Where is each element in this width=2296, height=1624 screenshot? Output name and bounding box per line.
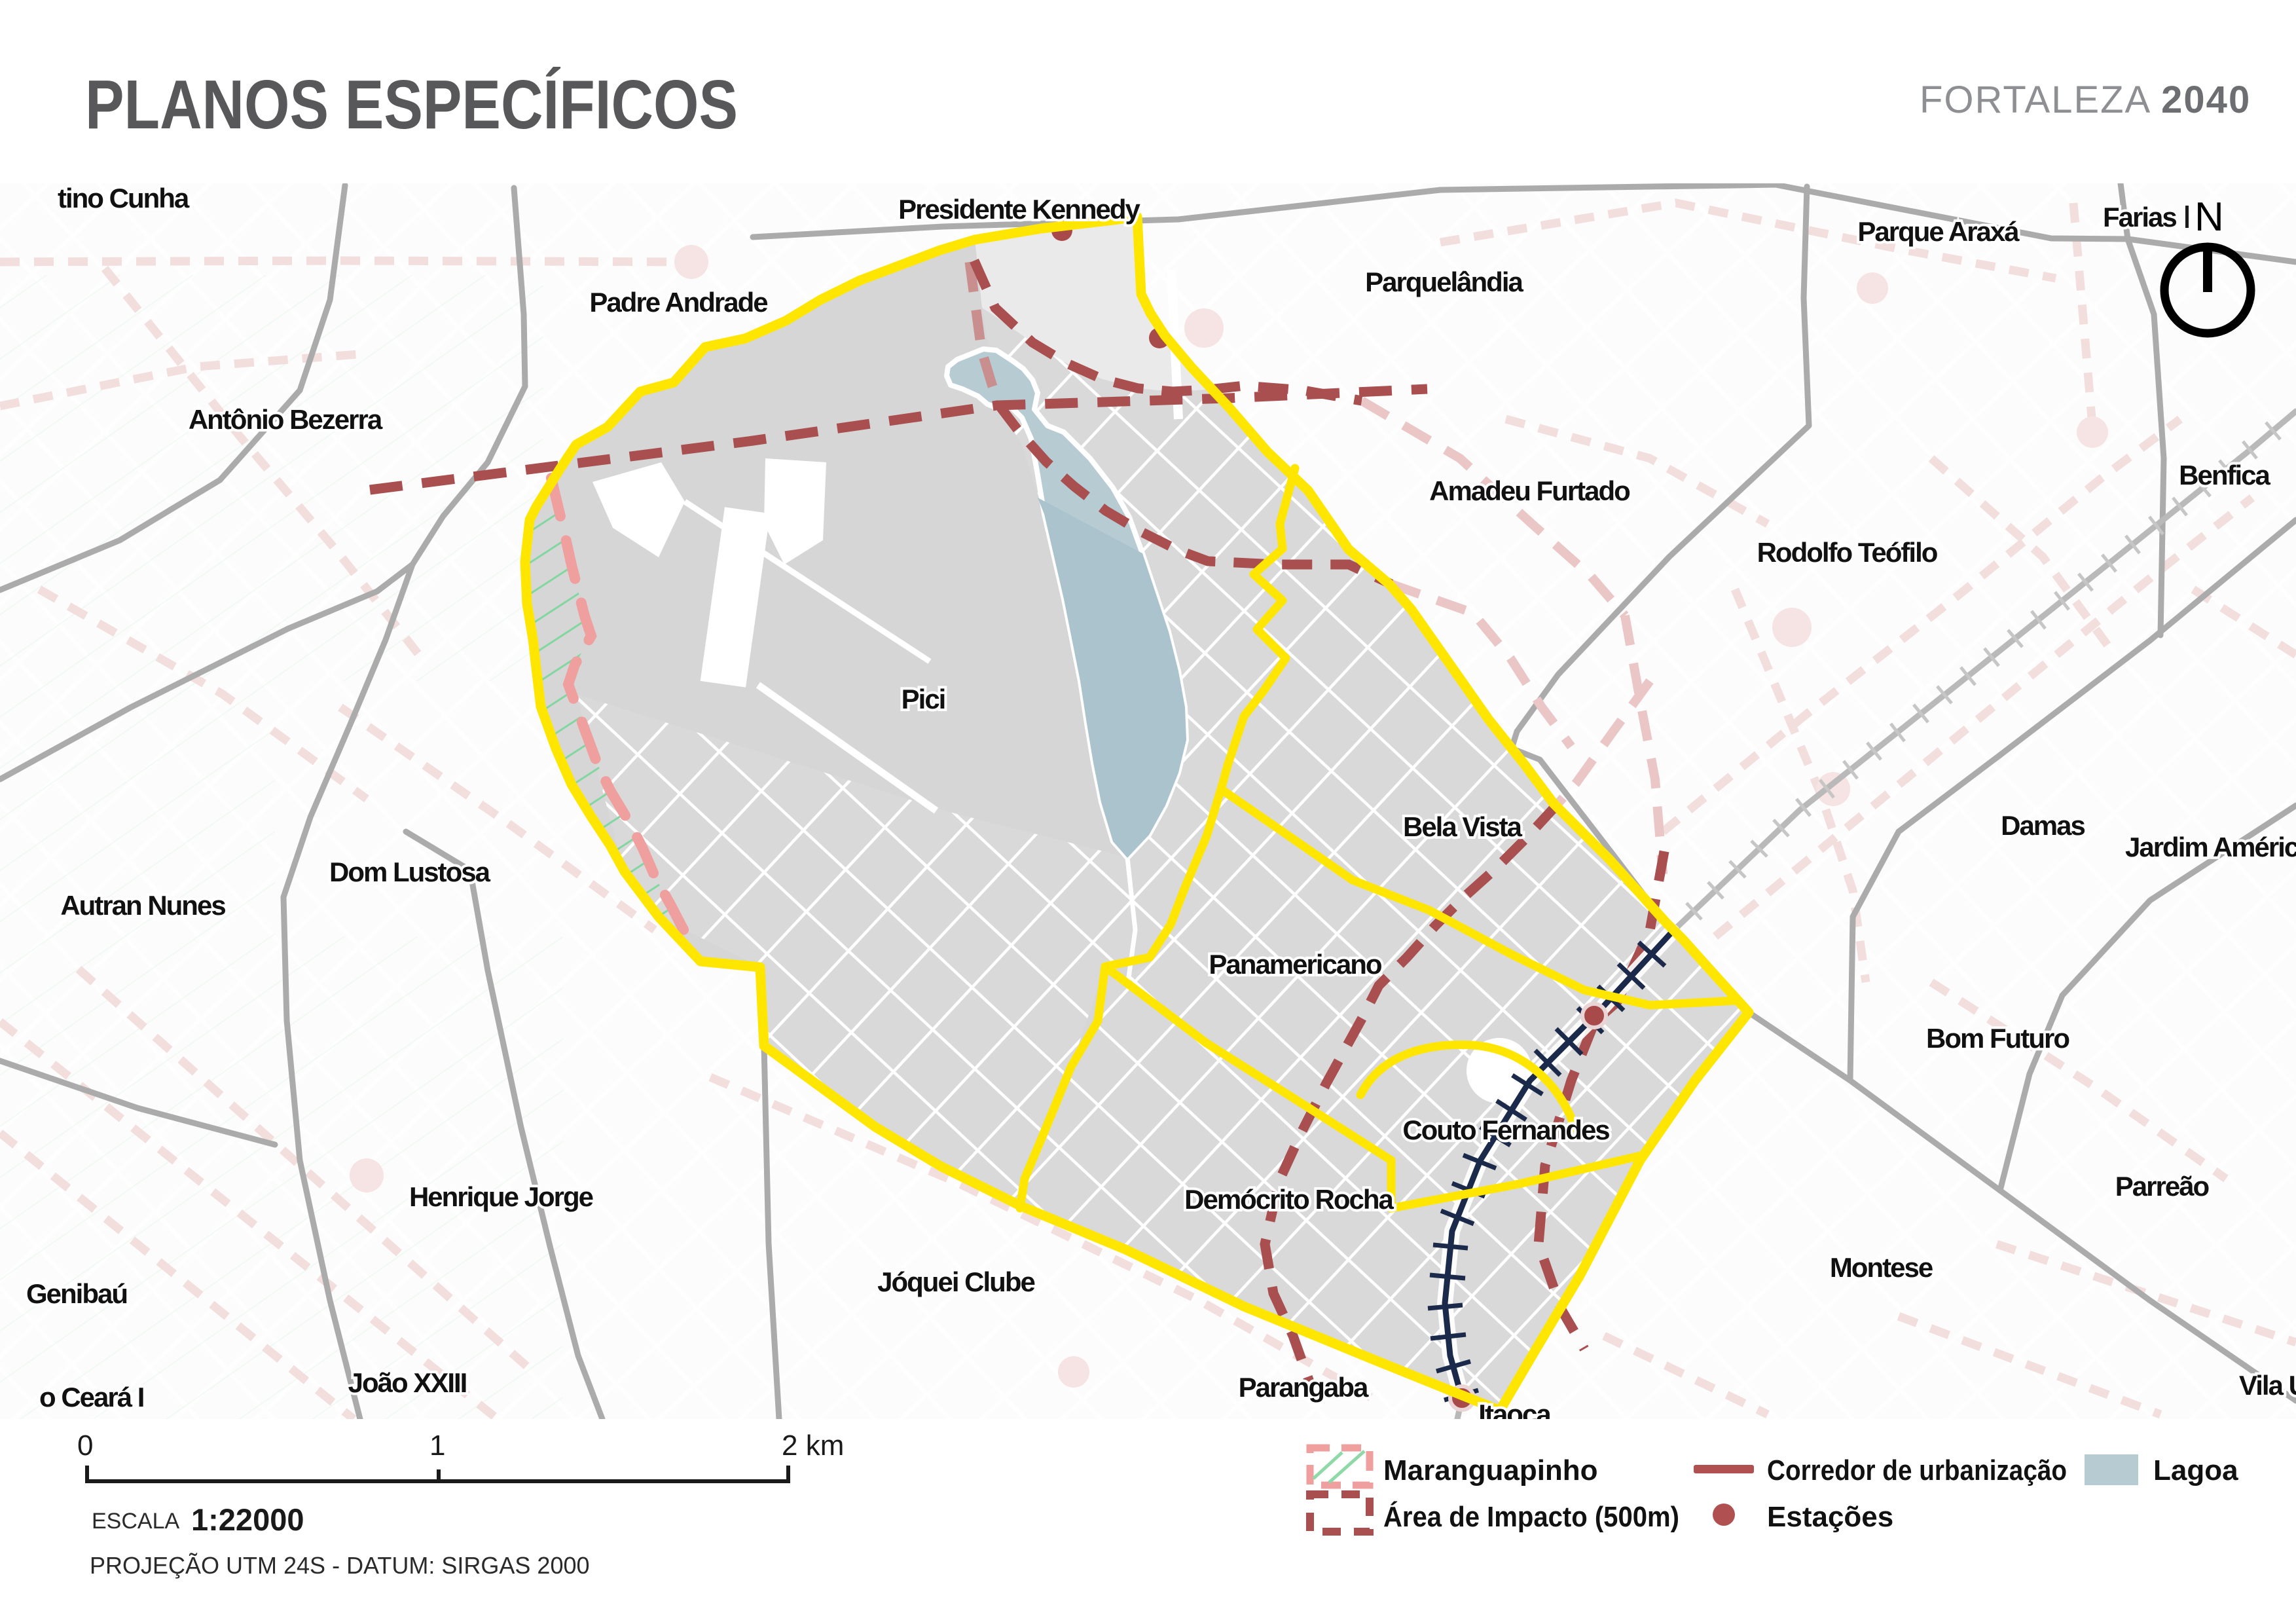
svg-text:2 km: 2 km [782, 1430, 844, 1462]
svg-text:Estações: Estações [1767, 1501, 1893, 1533]
svg-text:Farias: Farias [2103, 202, 2176, 232]
svg-text:1: 1 [429, 1430, 445, 1462]
svg-text:João XXIII: João XXIII [348, 1367, 467, 1398]
svg-text:Jóquei Clube: Jóquei Clube [877, 1266, 1034, 1297]
svg-text:Demócrito Rocha: Demócrito Rocha [1184, 1184, 1394, 1215]
svg-text:Área de Impacto (500m): Área de Impacto (500m) [1383, 1500, 1679, 1533]
svg-text:ESCALA: ESCALA [92, 1509, 179, 1534]
svg-text:N: N [2195, 194, 2224, 240]
svg-text:0: 0 [77, 1430, 93, 1462]
svg-text:FORTALEZA 2040: FORTALEZA 2040 [1920, 79, 2251, 121]
svg-text:Parangaba: Parangaba [1239, 1372, 1369, 1403]
svg-text:Maranguapinho: Maranguapinho [1383, 1454, 1598, 1486]
svg-text:Autran Nunes: Autran Nunes [60, 890, 225, 921]
svg-text:Couto Fernandes: Couto Fernandes [1402, 1115, 1609, 1145]
svg-text:PROJEÇÃO UTM 24S - DATUM: SIRG: PROJEÇÃO UTM 24S - DATUM: SIRGAS 2000 [90, 1552, 590, 1579]
svg-text:Dom Lustosa: Dom Lustosa [329, 857, 491, 887]
svg-text:Genibaú: Genibaú [26, 1278, 127, 1309]
svg-text:Bom Futuro: Bom Futuro [1926, 1023, 2069, 1054]
svg-text:Parque Araxá: Parque Araxá [1857, 216, 2020, 247]
svg-text:Corredor de urbanização: Corredor de urbanização [1767, 1454, 2067, 1486]
svg-text:Presidente Kennedy: Presidente Kennedy [898, 194, 1140, 225]
svg-text:Benfica: Benfica [2179, 460, 2270, 490]
svg-text:Parreão: Parreão [2115, 1171, 2210, 1202]
svg-text:Vila União: Vila União [2239, 1370, 2296, 1401]
svg-text:PLANOS ESPECÍFICOS: PLANOS ESPECÍFICOS [85, 66, 738, 143]
svg-text:Panamericano: Panamericano [1209, 949, 1381, 980]
svg-text:1:22000: 1:22000 [191, 1502, 304, 1537]
svg-text:tino Cunha: tino Cunha [58, 183, 190, 213]
svg-text:Parquelândia: Parquelândia [1365, 267, 1523, 297]
svg-text:o Ceará I: o Ceará I [39, 1382, 143, 1412]
svg-text:Antônio Bezerra: Antônio Bezerra [189, 404, 383, 435]
svg-text:Jardim América: Jardim América [2125, 832, 2296, 862]
svg-text:Damas: Damas [2001, 810, 2085, 841]
svg-text:Padre Andrade: Padre Andrade [589, 287, 767, 318]
svg-text:Henrique Jorge: Henrique Jorge [409, 1181, 593, 1212]
svg-text:Bela Vista: Bela Vista [1403, 811, 1523, 842]
svg-text:Pici: Pici [902, 684, 945, 714]
svg-text:Montese: Montese [1830, 1252, 1933, 1283]
svg-text:Rodolfo Teófilo: Rodolfo Teófilo [1757, 537, 1938, 568]
svg-text:Lagoa: Lagoa [2153, 1454, 2238, 1486]
svg-text:Amadeu Furtado: Amadeu Furtado [1429, 475, 1630, 506]
